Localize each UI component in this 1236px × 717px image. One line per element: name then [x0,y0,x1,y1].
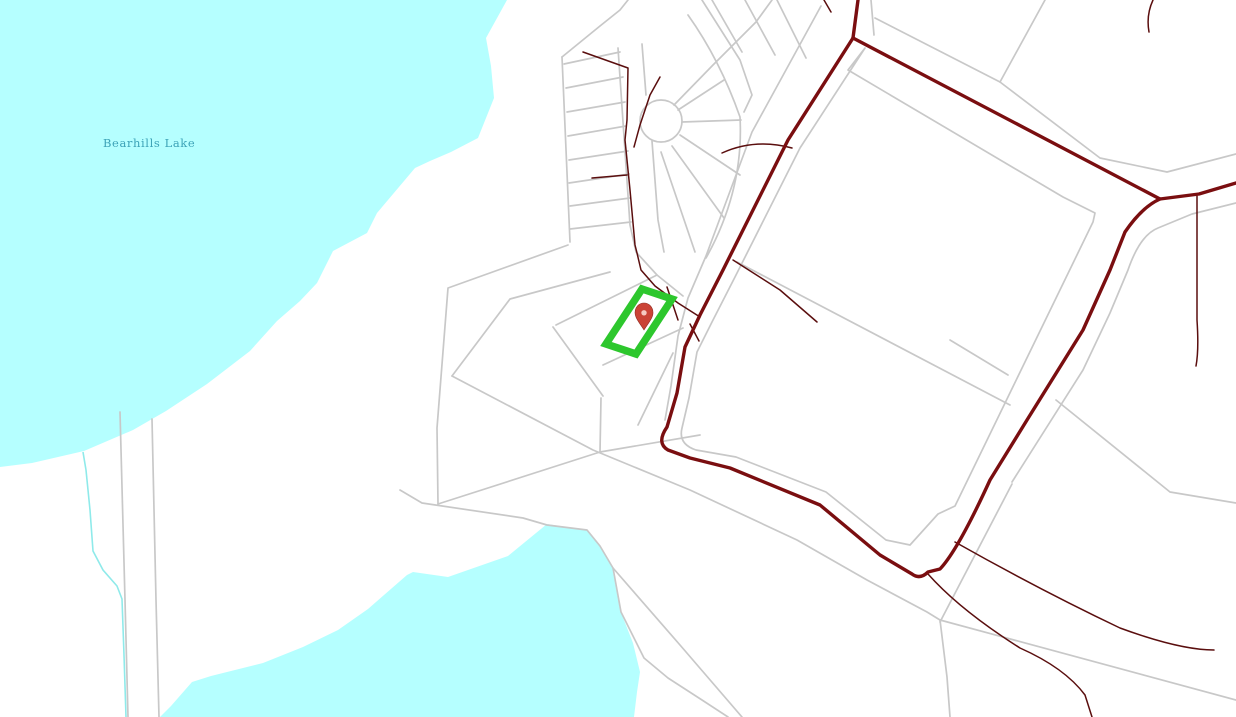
major-road-lines [662,0,1236,577]
pond-polygon [160,524,640,717]
stream-outlet [83,452,126,717]
water-layer [0,0,640,717]
lake-label: Bearhills Lake [103,136,195,150]
map-canvas[interactable]: Bearhills Lake [0,0,1236,717]
lake-polygon [0,0,507,467]
